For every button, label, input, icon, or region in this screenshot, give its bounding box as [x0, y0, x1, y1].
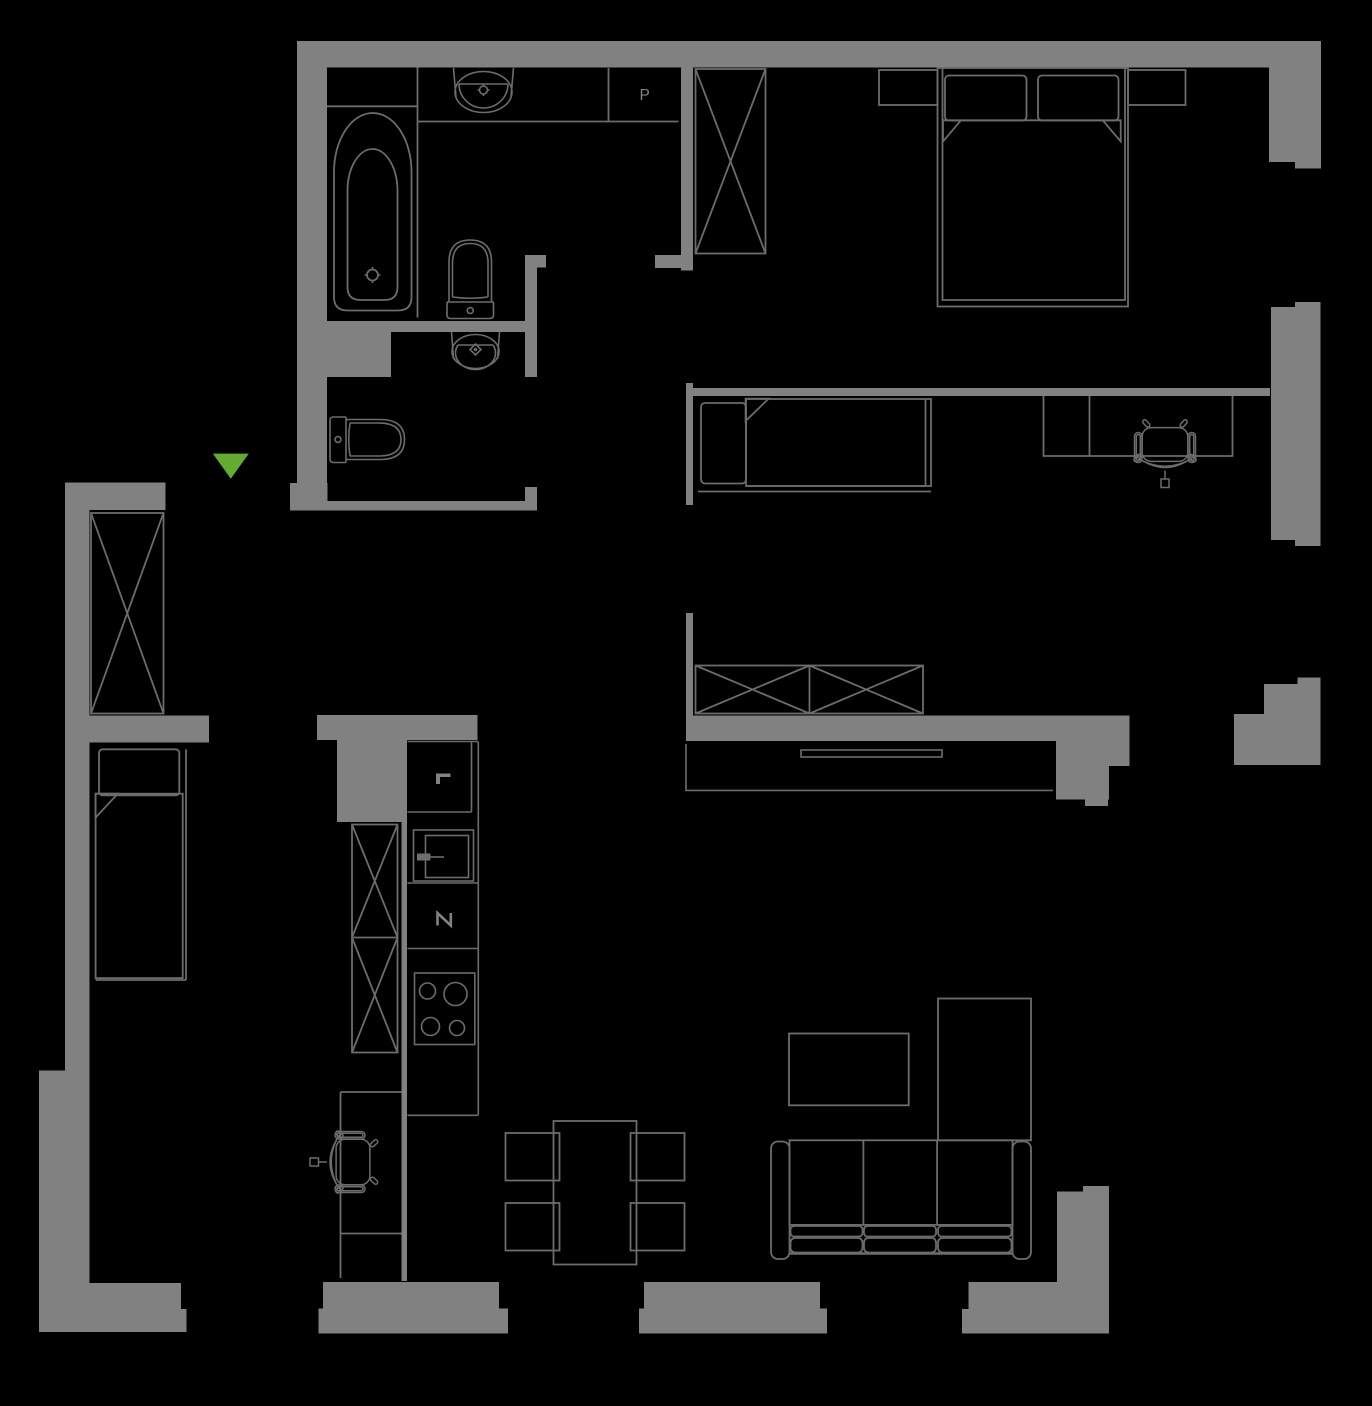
svg-text:P: P [640, 87, 650, 104]
